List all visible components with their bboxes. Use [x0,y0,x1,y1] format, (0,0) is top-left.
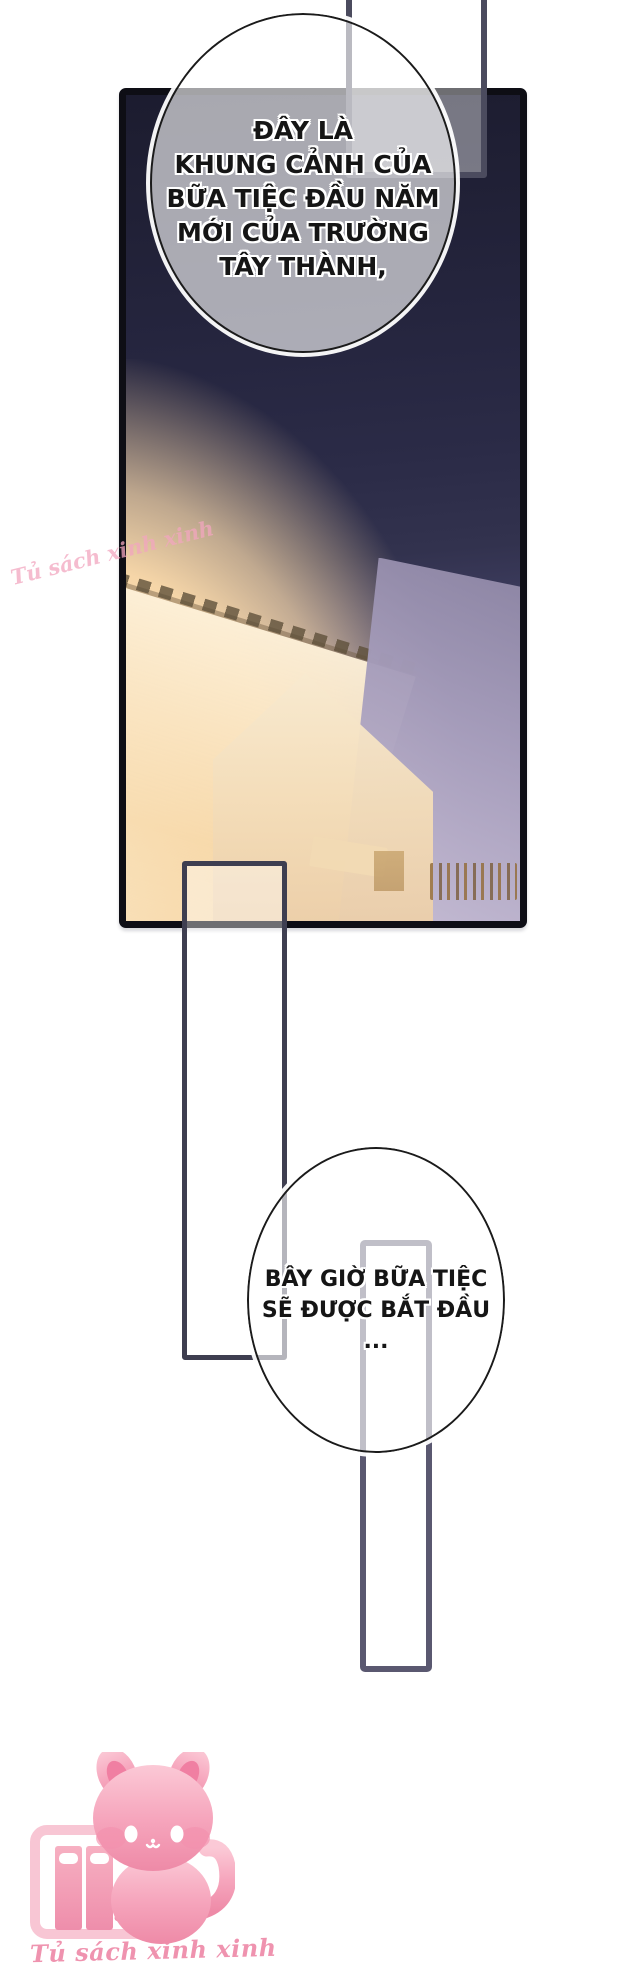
cat-nose [151,1839,155,1843]
bubble2-line-3: ... [262,1326,490,1357]
speech-bubble-2-text: BÂY GIỜ BỮA TIỆC SẼ ĐƯỢC BẮT ĐẦU ... [262,1264,490,1357]
cat-head [93,1765,213,1871]
bubble1-line-5: TÂY THÀNH, [167,250,440,284]
speech-bubble-1: ĐÂY LÀ KHUNG CẢNH CỦA BỮA TIỆC ĐẦU NĂM M… [150,13,456,353]
bubble1-line-1: ĐÂY LÀ [167,114,440,148]
bubble2-line-1: BÂY GIỜ BỮA TIỆC [262,1264,490,1295]
cat-eye-left [125,1826,138,1843]
doorway-silhouette [374,851,404,891]
bubble2-line-2: SẼ ĐƯỢC BẮT ĐẦU [262,1295,490,1326]
cat-cheek-left [96,1827,126,1849]
cat-mouth [147,1845,159,1847]
crowd-silhouettes [430,863,517,899]
speech-bubble-2: BÂY GIỜ BỮA TIỆC SẼ ĐƯỢC BẮT ĐẦU ... [247,1147,505,1453]
cat-cheek-right [180,1827,210,1849]
bubble1-line-2: KHUNG CẢNH CỦA [167,148,440,182]
bubble1-line-4: MỚI CỦA TRƯỜNG [167,216,440,250]
cat-eye-right [171,1826,184,1843]
bubble1-line-3: BỮA TIỆC ĐẦU NĂM [167,182,440,216]
comic-page: ĐÂY LÀ KHUNG CẢNH CỦA BỮA TIỆC ĐẦU NĂM M… [0,0,640,1981]
pink-cat-bookshelf-logo-icon [25,1752,235,1944]
speech-bubble-1-text: ĐÂY LÀ KHUNG CẢNH CỦA BỮA TIỆC ĐẦU NĂM M… [167,114,440,284]
